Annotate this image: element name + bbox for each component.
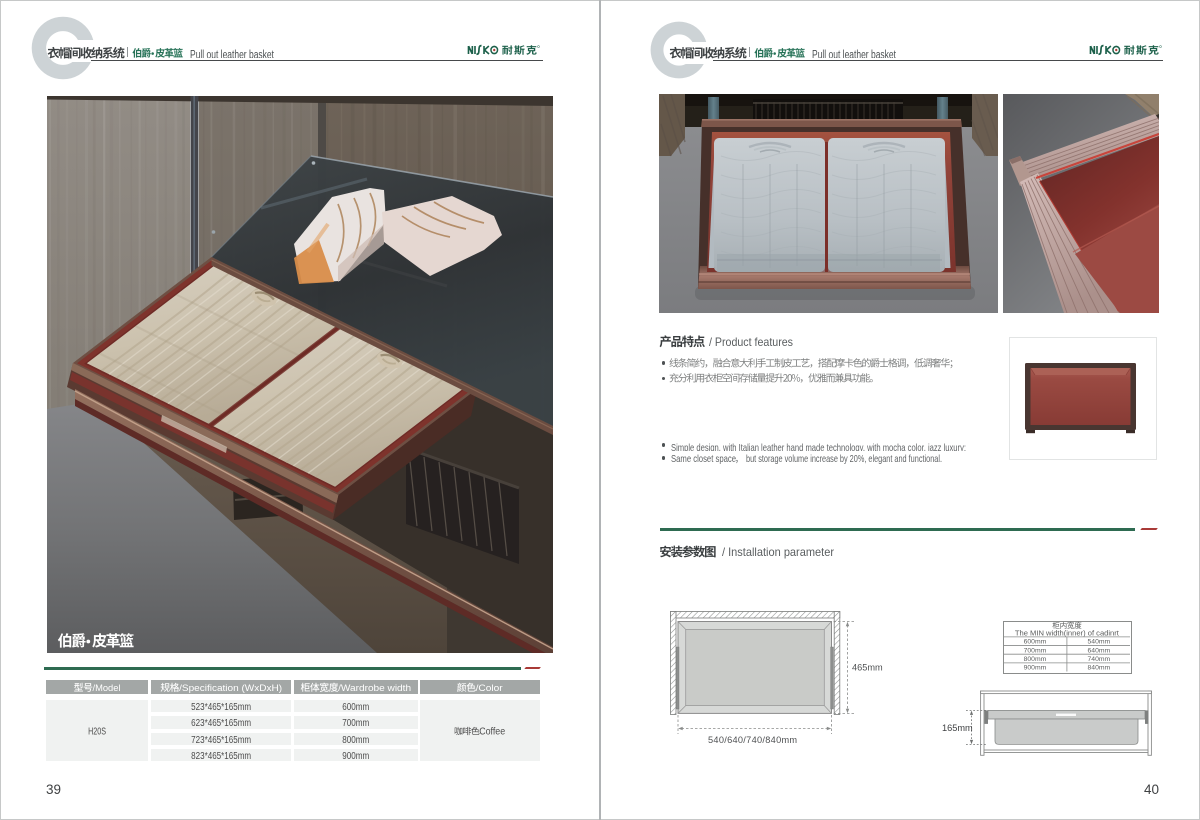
svg-text:800mm: 800mm (1023, 656, 1046, 663)
svg-text:/Model: /Model (93, 682, 121, 693)
svg-text:165mm: 165mm (942, 723, 973, 733)
svg-text:600mm: 600mm (1023, 639, 1046, 646)
svg-text:/ Product features: / Product features (709, 336, 793, 349)
svg-text:740mm: 740mm (1087, 656, 1110, 663)
svg-text:800mm: 800mm (343, 734, 370, 744)
svg-text:Same closet space: Same closet space (671, 454, 736, 465)
svg-text:Simple design, with Italian le: Simple design, with Italian leather hand… (671, 443, 966, 451)
svg-text:/Wardrobe width: /Wardrobe width (338, 682, 411, 693)
svg-text:/ Installation parameter: / Installation parameter (722, 546, 834, 559)
svg-text:700mm: 700mm (1023, 647, 1046, 654)
svg-text:H20S: H20S (88, 726, 106, 737)
svg-text:465mm: 465mm (852, 663, 883, 673)
svg-text:600mm: 600mm (343, 702, 370, 712)
svg-text:723*465*165mm: 723*465*165mm (191, 734, 251, 744)
svg-text:/Color: /Color (476, 682, 503, 693)
svg-text:700mm: 700mm (343, 718, 370, 728)
svg-text:623*465*165mm: 623*465*165mm (191, 718, 251, 728)
svg-text:Coffee: Coffee (480, 726, 506, 737)
svg-text:523*465*165mm: 523*465*165mm (191, 702, 251, 712)
svg-text:840mm: 840mm (1087, 665, 1110, 672)
svg-text:540/640/740/840mm: 540/640/740/840mm (708, 735, 797, 745)
svg-text:/Specification (WxDxH): /Specification (WxDxH) (179, 682, 282, 693)
svg-text:640mm: 640mm (1087, 647, 1110, 654)
svg-text:Pull out leather basket: Pull out leather basket (190, 49, 275, 58)
svg-text:but storage volume increase by: but storage volume increase by 20%, eleg… (746, 454, 942, 465)
svg-text:Pull out leather basket: Pull out leather basket (812, 49, 897, 58)
svg-text:The MIN width(inner) of cadinr: The MIN width(inner) of cadinrt (1014, 629, 1119, 638)
svg-text:900mm: 900mm (1023, 665, 1046, 672)
svg-text:900mm: 900mm (343, 751, 370, 761)
svg-text:823*465*165mm: 823*465*165mm (191, 751, 251, 761)
svg-text:540mm: 540mm (1087, 639, 1110, 646)
